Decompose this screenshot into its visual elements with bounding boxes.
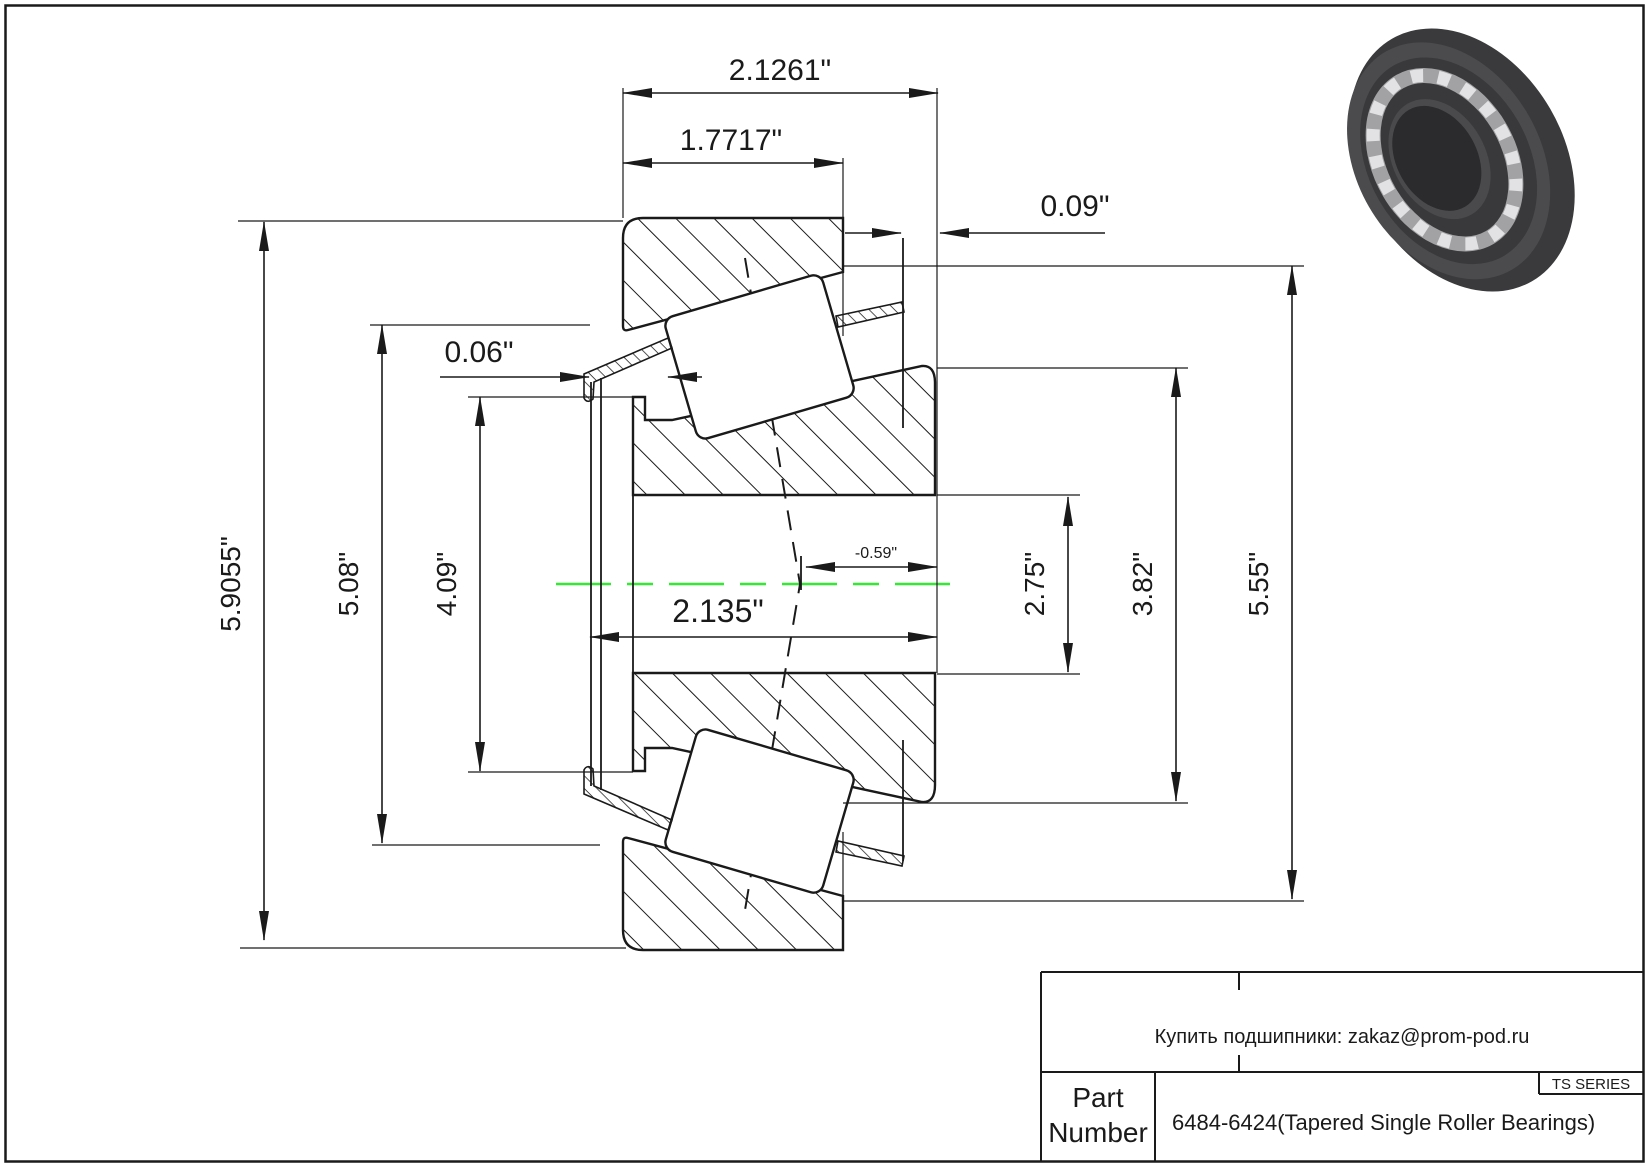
cage-upper-right (836, 302, 904, 327)
cage-upper-left (584, 338, 672, 401)
dim-label-cup-inner-diameter: 5.55" (1243, 552, 1274, 616)
drawing-page: 2.1261" 1.7717" 0.09" 0.06" -0.59" 2.135… (0, 0, 1649, 1167)
dim-label-overall-width: 2.135" (672, 593, 763, 629)
dim-label-cone-width: 1.7717" (680, 124, 782, 157)
dim-label-front-rib-diameter: 4.09" (431, 552, 462, 616)
dim-label-bore-diameter: 2.75" (1019, 552, 1050, 616)
dim-label-back-face-offset: 0.09" (1040, 190, 1109, 223)
dim-label-outer-diameter: 5.9055" (215, 536, 246, 632)
dim-label-cup-outer-width: 2.1261" (729, 54, 831, 87)
part-number-value: 6484-6424(Tapered Single Roller Bearings… (1172, 1110, 1595, 1135)
contact-line: Купить подшипники: zakaz@prom-pod.ru (1155, 1026, 1530, 1048)
title-block: Купить подшипники: zakaz@prom-pod.ru TS … (1041, 972, 1644, 1161)
series-badge: TS SERIES (1552, 1076, 1630, 1093)
dim-label-front-face-offset: 0.06" (444, 336, 513, 369)
bearing-3d-render (1302, 0, 1620, 333)
dim-label-cone-back-diameter: 3.82" (1127, 552, 1158, 616)
part-label-line2: Number (1048, 1117, 1148, 1148)
cage-lower-left (584, 767, 672, 830)
cage-lower-right (836, 841, 904, 866)
dim-label-effective-center: -0.59" (855, 545, 897, 562)
dim-label-flange-diameter: 5.08" (333, 552, 364, 616)
bearing-cross-section (556, 218, 960, 950)
part-label-line1: Part (1072, 1082, 1124, 1113)
